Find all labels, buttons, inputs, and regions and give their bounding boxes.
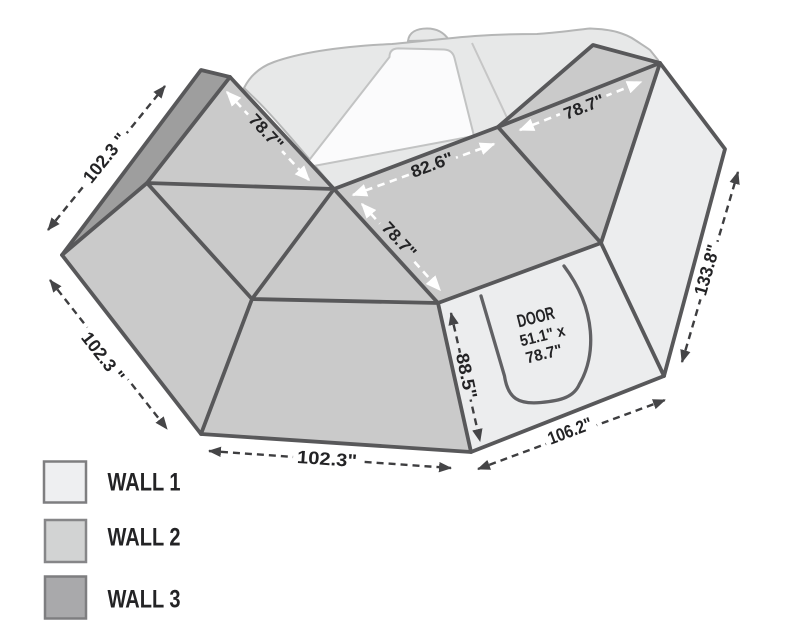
svg-text:WALL 3: WALL 3 <box>108 586 181 614</box>
svg-text:WALL 2: WALL 2 <box>108 524 181 552</box>
svg-text:102.3": 102.3" <box>296 447 357 471</box>
svg-text:WALL 1: WALL 1 <box>108 469 181 497</box>
